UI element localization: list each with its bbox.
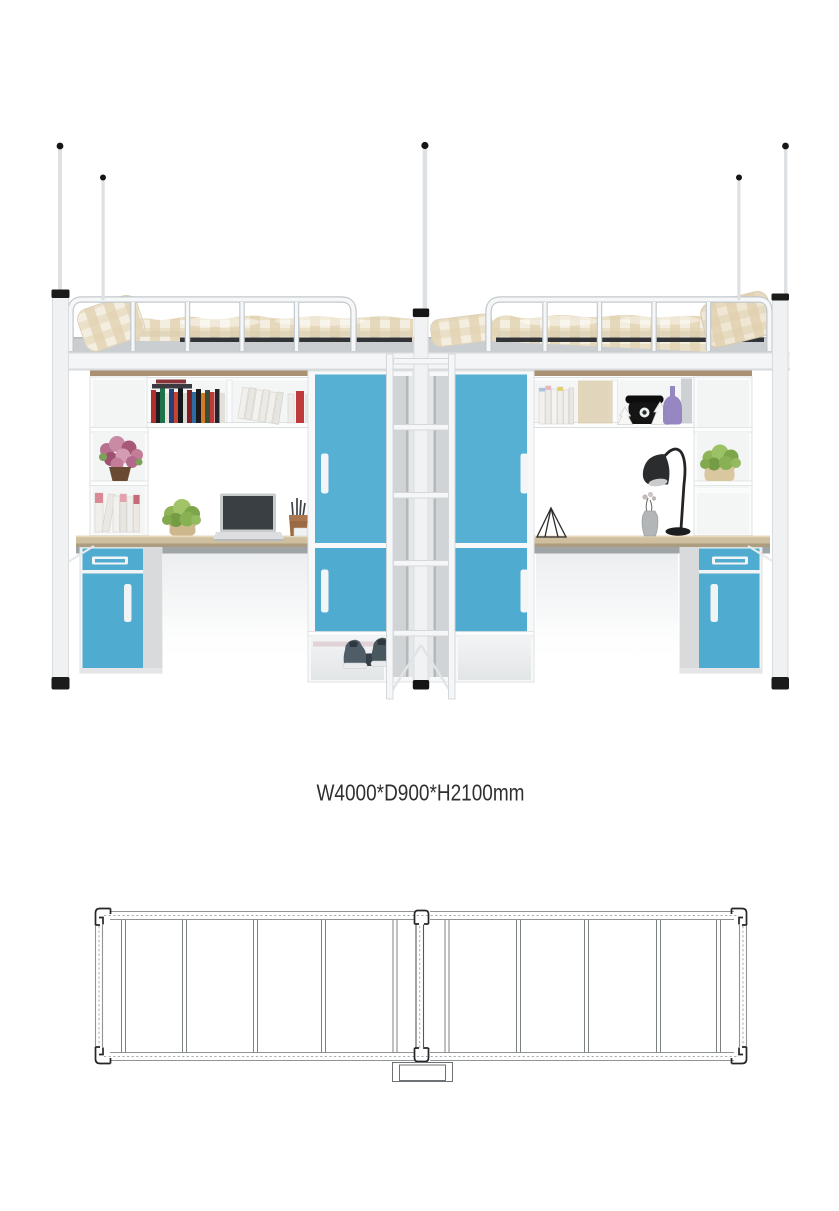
svg-text:W4000*D900*H2100mm: W4000*D900*H2100mm xyxy=(317,780,525,806)
